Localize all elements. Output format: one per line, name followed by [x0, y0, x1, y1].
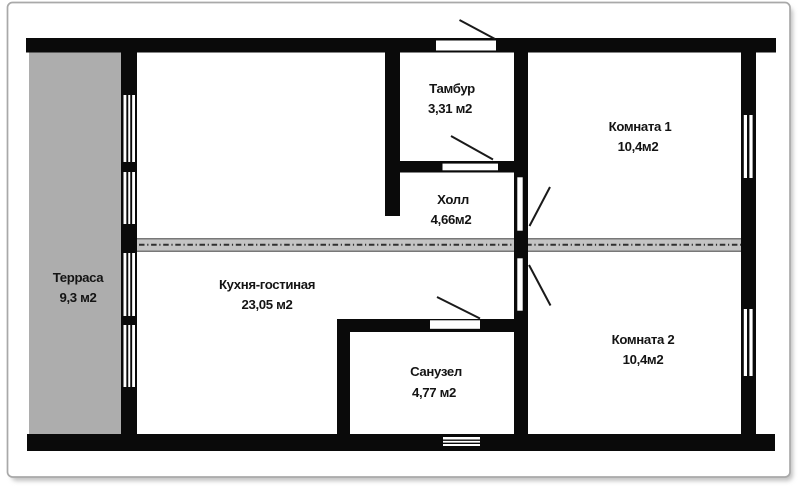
svg-text:Холл: Холл	[437, 192, 469, 207]
svg-text:9,3 м2: 9,3 м2	[60, 290, 97, 305]
svg-text:Комната 1: Комната 1	[609, 119, 672, 134]
svg-text:4,77 м2: 4,77 м2	[412, 385, 456, 400]
svg-text:23,05 м2: 23,05 м2	[242, 297, 293, 312]
svg-text:Терраса: Терраса	[53, 270, 105, 285]
svg-text:Санузел: Санузел	[410, 364, 462, 379]
svg-text:Тамбур: Тамбур	[429, 81, 475, 96]
svg-text:10,4м2: 10,4м2	[618, 139, 659, 154]
svg-text:10,4м2: 10,4м2	[623, 352, 664, 367]
svg-text:Кухня-гостиная: Кухня-гостиная	[219, 277, 315, 292]
svg-text:3,31 м2: 3,31 м2	[428, 101, 472, 116]
svg-text:Комната 2: Комната 2	[612, 332, 675, 347]
svg-text:4,66м2: 4,66м2	[431, 212, 472, 227]
